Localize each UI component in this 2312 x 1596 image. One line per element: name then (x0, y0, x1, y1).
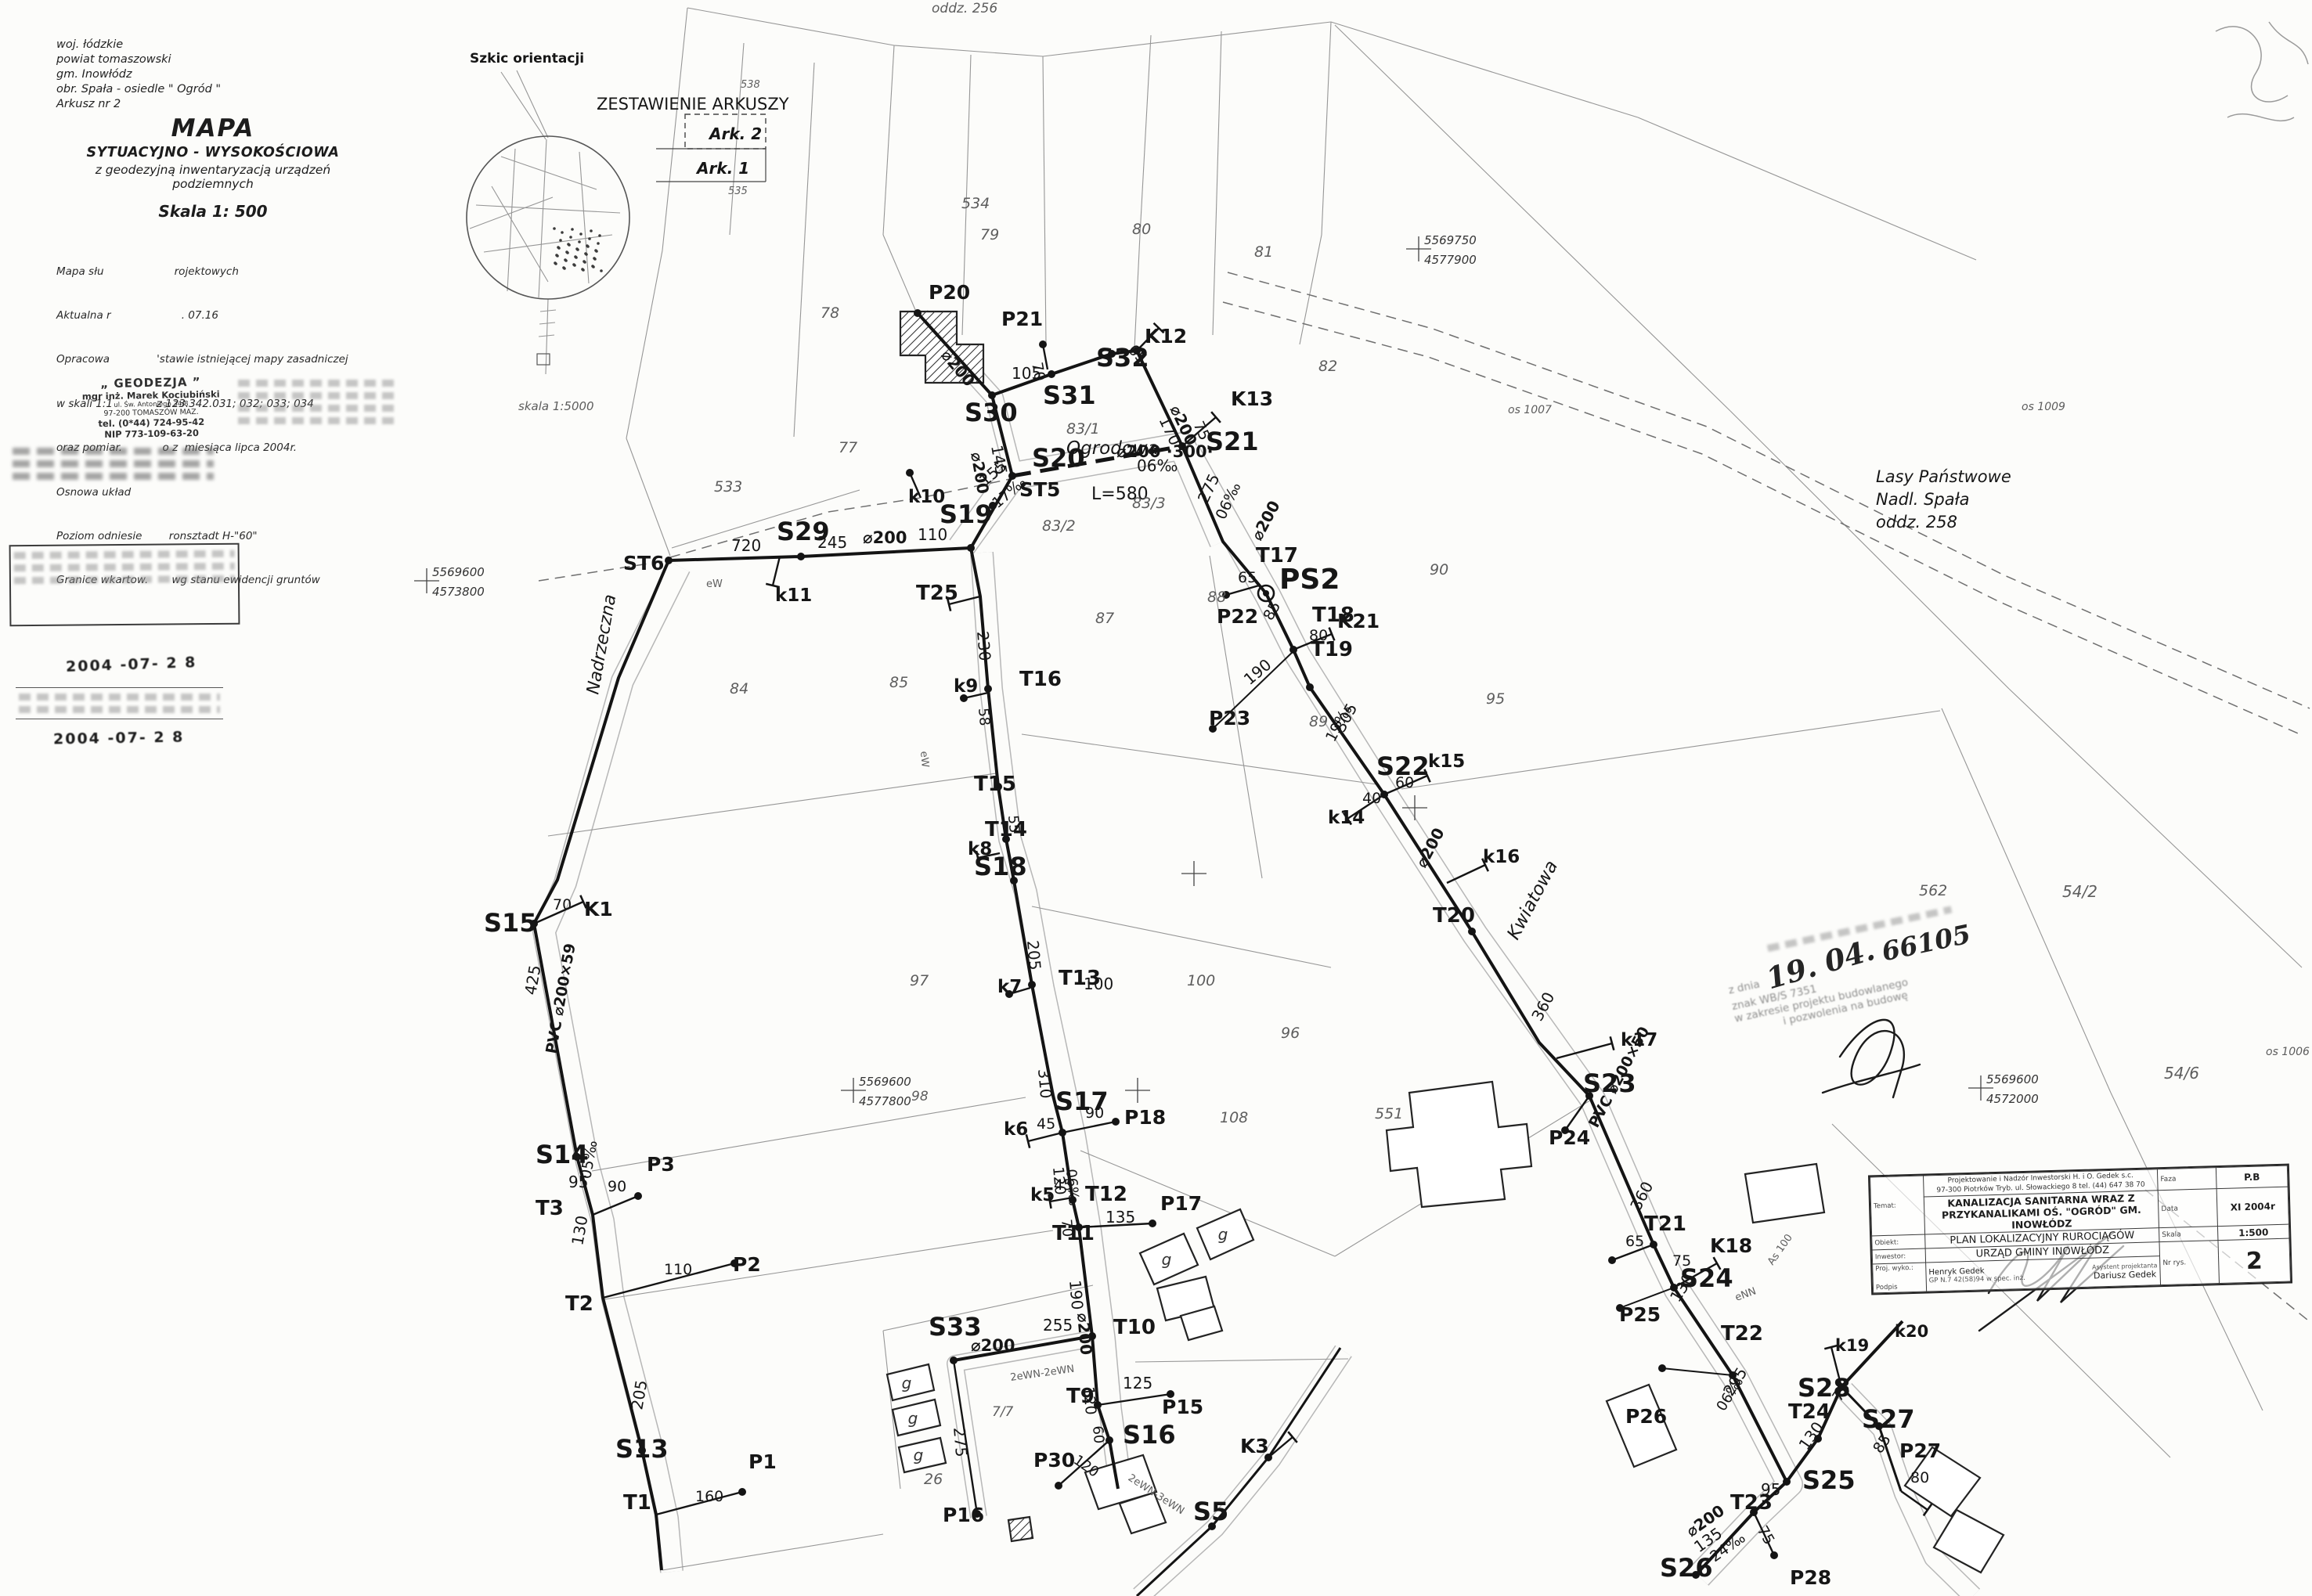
map-label: k6 (1004, 1119, 1028, 1140)
map-label: eW (706, 578, 723, 590)
map-label: os 1006 (2266, 1046, 2310, 1058)
map-label: 230 (973, 630, 994, 661)
map-label: 45 (1037, 1115, 1055, 1133)
map-label: S27 (1862, 1404, 1915, 1434)
map-label: P16 (943, 1504, 984, 1526)
map-label: As 100 (1766, 1232, 1795, 1267)
map-label: 120 (1080, 1386, 1099, 1416)
registry-stamp-box-2 (16, 687, 223, 719)
map-label: 720 (731, 536, 761, 555)
map-label: 90 (1085, 1104, 1104, 1122)
map-label: T21 (1644, 1212, 1686, 1236)
garage-label: g (908, 1409, 918, 1428)
map-label: k9 (954, 676, 978, 697)
map-label: T25 (916, 582, 958, 605)
map-label: 54/2 (2062, 882, 2097, 901)
garage-label: g (902, 1374, 912, 1392)
map-label: P25 (1619, 1303, 1661, 1326)
map-label: 70 (1058, 1219, 1076, 1238)
map-label: 79 (980, 226, 999, 243)
map-label: 538 (741, 79, 760, 91)
orientation-sketch (467, 136, 629, 365)
map-label: 75 (1672, 1252, 1691, 1270)
map-label: 87 (1095, 610, 1114, 627)
map-label: 98 (911, 1089, 929, 1104)
map-label: P24 (1549, 1126, 1590, 1149)
proj-label: Proj. wyko.: (1875, 1264, 1923, 1274)
meta-line: Poziom odniesie ronsztadt H-"60" (56, 529, 348, 544)
titleblock-obiekt-label: Obiekt: (1872, 1234, 1925, 1250)
map-label: Ark. 1 (695, 159, 749, 178)
map-label: 77 (839, 439, 857, 456)
map-label: ⌀200 (967, 451, 993, 495)
illegible-smudge (9, 442, 217, 485)
titleblock-data-label: Data (2158, 1189, 2217, 1228)
map-label: ⌀200 (863, 528, 907, 547)
map-label: S21 (1206, 427, 1259, 456)
map-label: 90 (608, 1178, 626, 1195)
map-label: 80 (1910, 1469, 1929, 1486)
map-label: k19 (1835, 1336, 1869, 1355)
titleblock-signatories: Henryk Gedek GP N.7 42(58)94 w spec. inż… (1926, 1256, 2161, 1292)
map-label: T12 (1085, 1183, 1127, 1206)
header-sheet-number: Arkusz nr 2 (56, 97, 221, 112)
map-label: K1 (584, 898, 613, 920)
map-label: S5 (1193, 1497, 1228, 1526)
assistant-cell: Asystent projektanta Dariusz Gedek (2092, 1262, 2158, 1281)
map-label: P18 (1124, 1106, 1166, 1129)
titleblock-data-value: XI 2004r (2216, 1187, 2289, 1227)
map-label: 255 (1043, 1316, 1073, 1335)
map-label: Ogrodowa (1066, 438, 1159, 459)
map-label: 80 (1132, 221, 1151, 238)
map-label: 55 (1005, 815, 1023, 834)
map-label: T1 (623, 1491, 651, 1515)
map-label: 82 (1318, 358, 1337, 375)
map-label: 81 (1254, 243, 1273, 261)
map-label: T10 (1113, 1316, 1156, 1339)
map-label: ZESTAWIENIE ARKUSZY (597, 95, 789, 113)
map-label: S30 (965, 398, 1018, 427)
map-label: T3 (536, 1197, 564, 1220)
map-label: ⌀200 (1073, 1312, 1096, 1356)
map-label: T16 (1019, 668, 1062, 691)
map-label: 190 (1240, 655, 1275, 689)
map-label: T15 (974, 773, 1016, 796)
map-label: 110 (664, 1261, 692, 1278)
map-sheet-header: woj. łódzkie powiat tomaszowski gm. Inow… (56, 38, 221, 112)
map-label: Szkic orientacji (470, 51, 584, 67)
date-stamp-2: 2004 -07- 2 8 (53, 729, 185, 748)
map-label: 78 (821, 304, 839, 322)
map-label: 80 (1309, 627, 1328, 644)
titleblock-proj-label: Proj. wyko.: Podpis (1873, 1263, 1927, 1293)
map-label: 310 (1034, 1068, 1055, 1099)
coordinate-label: 5569600 (432, 565, 485, 579)
header-commune: gm. Inowłódz (56, 67, 221, 82)
illegible-stamp (235, 374, 403, 430)
map-label: 100 (1187, 972, 1215, 989)
map-label: k7 (997, 977, 1022, 997)
map-subtitle-2: z geodezyjną inwentaryzacją urządzeń pod… (69, 163, 357, 191)
map-label: 160 (695, 1488, 723, 1505)
map-label: ⌀200 (971, 1336, 1015, 1355)
titleblock-temat: KANALIZACJA SANITARNA WRAZ Z PRZYKANALIK… (1924, 1191, 2159, 1234)
map-label: 562 (1919, 882, 1947, 899)
podpis-label: Podpis (1876, 1283, 1924, 1292)
map-label: 85 (889, 674, 908, 691)
map-label: 130 (568, 1214, 591, 1247)
map-label: Ark. 2 (708, 124, 762, 143)
map-subtitle: SYTUACYJNO - WYSOKOŚCIOWA (69, 145, 357, 160)
map-label: T24 (1788, 1400, 1830, 1424)
map-label: T20 (1433, 904, 1475, 928)
map-label: k14 (1328, 808, 1365, 828)
map-label: P20 (929, 281, 970, 304)
map-label: k15 (1428, 751, 1465, 772)
map-label: k10 (908, 487, 945, 507)
titleblock-faza-value: P.B (2216, 1165, 2288, 1189)
header-county: powiat tomaszowski (56, 52, 221, 67)
map-label: 70 (1028, 361, 1048, 383)
meta-line: Osnowa układ (56, 485, 348, 500)
map-label: S16 (1123, 1420, 1176, 1450)
map-label: P26 (1625, 1405, 1667, 1428)
map-label: 135 (1106, 1208, 1135, 1227)
map-label: k8 (968, 839, 992, 859)
map-label: 58 (975, 708, 993, 727)
geodezja-stamp: „ GEODEZJA ” mgr inż. Marek Kociubiński … (78, 374, 224, 440)
map-label: S31 (1043, 380, 1096, 410)
map-label: ⌀200 (1247, 498, 1283, 544)
map-label: k20 (1895, 1322, 1928, 1341)
titleblock-nr-value: 2 (2218, 1238, 2290, 1284)
map-label: ST6 (623, 552, 664, 575)
map-label: 205 (1023, 939, 1044, 971)
map-label: 533 (714, 478, 742, 495)
coordinate-label: 4577800 (859, 1094, 911, 1108)
garage-label: g (914, 1446, 924, 1465)
map-label: 40 (1362, 790, 1381, 807)
map-label: 534 (961, 195, 990, 212)
garage-label: g (1218, 1225, 1228, 1244)
map-label: 54/6 (2164, 1064, 2199, 1083)
map-label: S13 (615, 1434, 669, 1464)
map-label: 7/7 (992, 1404, 1014, 1420)
map-label: 95 (1761, 1480, 1780, 1499)
map-label: Kwiatowa (1503, 857, 1562, 943)
map-label: skala 1:5000 (518, 399, 594, 413)
garage-label: g (1162, 1250, 1172, 1269)
registry-stamp-box (9, 543, 240, 627)
map-label: 96 (1281, 1025, 1300, 1042)
map-label: 110 (918, 525, 947, 544)
map-label: K21 (1337, 610, 1380, 632)
map-label: 06‰ (1062, 1169, 1082, 1207)
map-label: P2 (733, 1253, 761, 1276)
header-voivodeship: woj. łódzkie (56, 38, 221, 52)
map-label: 190 (1066, 1279, 1087, 1310)
map-scale: Skala 1: 500 (69, 202, 357, 221)
coordinate-label: 4577900 (1424, 253, 1477, 267)
assistant-name: Dariusz Gedek (2092, 1269, 2158, 1281)
map-label: 425 (521, 964, 544, 996)
map-label: T22 (1721, 1322, 1763, 1346)
map-label: P1 (748, 1450, 777, 1473)
map-label: P28 (1790, 1566, 1831, 1589)
coordinate-label: 5569600 (1986, 1072, 2039, 1086)
map-label: 535 (728, 186, 748, 197)
map-label: k11 (775, 585, 812, 606)
map-label: 65 (1238, 569, 1257, 586)
map-label: Nadl. Spała (1876, 490, 1970, 509)
coordinate-label: 5569750 (1424, 233, 1477, 247)
map-label: P27 (1899, 1439, 1941, 1462)
meta-line: Aktualna r . 07.16 (56, 308, 348, 323)
designer-licence: GP N.7 42(58)94 w spec. inż. (1929, 1274, 2025, 1284)
map-title-block: MAPA SYTUACYJNO - WYSOKOŚCIOWA z geodezy… (69, 114, 357, 221)
map-label: Lasy Państwowe (1876, 467, 2011, 486)
map-label: P30 (1033, 1449, 1075, 1472)
map-label: 60 (1089, 1425, 1107, 1445)
map-label: 83/2 (1042, 517, 1076, 535)
map-label: 551 (1375, 1105, 1403, 1122)
map-label: K3 (1240, 1435, 1269, 1457)
map-label: oddz. 256 (932, 1, 997, 16)
map-label: 70 (553, 896, 572, 913)
titleblock-temat-label: Temat: (1870, 1176, 1925, 1236)
map-label: 83/3 (1132, 495, 1166, 512)
map-label: 125 (1123, 1374, 1152, 1392)
approval-zdnia: z dnia (1727, 978, 1761, 996)
map-label: 275 (950, 1426, 971, 1457)
map-label: oddz. 258 (1876, 513, 1957, 531)
map-label: 83/1 (1066, 420, 1100, 438)
map-label: T17 (1256, 544, 1298, 567)
map-label: k16 (1483, 847, 1520, 867)
map-label: eNN (1733, 1285, 1758, 1303)
map-label: 97 (910, 972, 929, 989)
map-label: 245 (817, 533, 847, 552)
map-label: P3 (647, 1153, 675, 1176)
map-label: S25 (1802, 1465, 1856, 1495)
map-label: 90 (1430, 561, 1448, 578)
map-label: PS2 (1279, 564, 1340, 596)
map-label: 2eWN-2eWN (1009, 1364, 1075, 1384)
meta-line: Mapa słu rojektowych (56, 265, 348, 279)
designer-cell: Henryk Gedek GP N.7 42(58)94 w spec. inż… (1928, 1266, 2025, 1285)
map-label: P22 (1217, 605, 1258, 628)
map-title: MAPA (69, 114, 357, 142)
map-label: K12 (1145, 325, 1187, 348)
map-label: 88 (1207, 589, 1226, 606)
map-label: eW (918, 751, 931, 768)
header-district: obr. Spała - osiedle " Ogród " (56, 82, 221, 97)
map-label: 89 (1309, 713, 1328, 730)
map-label: os 1009 (2022, 401, 2065, 413)
coordinate-label: 4573800 (432, 585, 485, 599)
titleblock-nr-label: Nr rys. (2159, 1241, 2219, 1285)
titleblock-inwestor-label: Inwestor: (1872, 1248, 1925, 1264)
map-label: P23 (1209, 707, 1250, 730)
coordinate-label: 4572000 (1986, 1092, 2039, 1106)
map-label: 95 (1486, 690, 1505, 708)
map-label: 65 (1625, 1233, 1644, 1250)
map-label: P17 (1160, 1192, 1202, 1215)
map-label: S26 (1660, 1553, 1713, 1583)
map-label: 84 (730, 680, 748, 697)
map-label: T2 (565, 1292, 593, 1316)
map-label: P21 (1001, 308, 1043, 330)
coordinate-label: 5569600 (859, 1075, 911, 1089)
map-label: K13 (1231, 387, 1273, 410)
meta-line: Opracowa 'stawie istniejącej mapy zasadn… (56, 352, 348, 367)
map-label: 108 (1220, 1109, 1248, 1126)
map-label: P15 (1162, 1396, 1203, 1418)
map-label: 60 (1395, 774, 1414, 791)
titleblock-skala-label: Skala (2159, 1227, 2218, 1242)
titleblock-faza-label: Faza (2158, 1168, 2217, 1191)
map-label: 100 (1084, 975, 1113, 993)
map-label: S15 (484, 908, 537, 938)
map-label: os 1007 (1508, 404, 1552, 416)
map-label: 26 (924, 1471, 943, 1488)
drawing-title-block: Temat: Projektowanie i Nadzór Inwestorsk… (1868, 1164, 2292, 1295)
map-label: K18 (1710, 1234, 1752, 1257)
